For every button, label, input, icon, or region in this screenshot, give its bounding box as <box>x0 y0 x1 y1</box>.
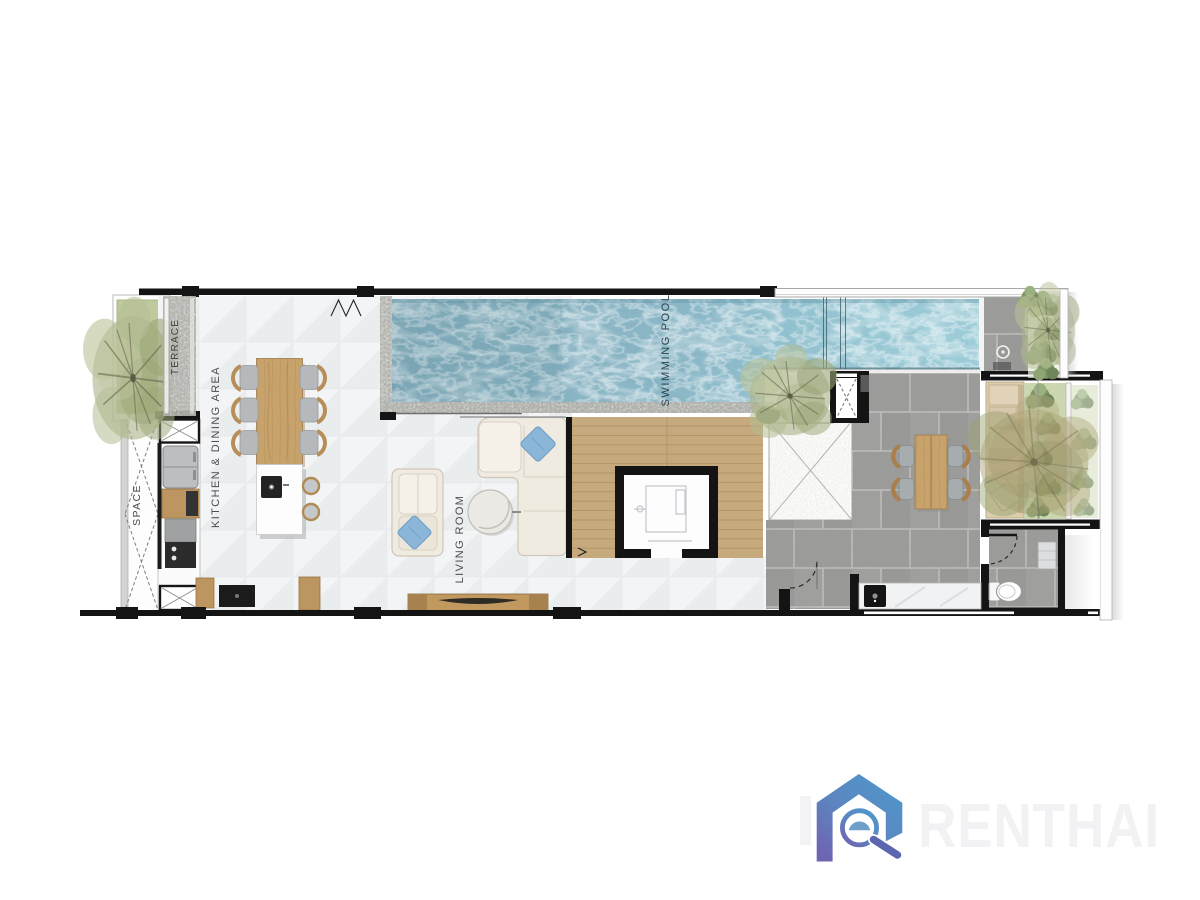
svg-text:TERRACE: TERRACE <box>170 319 181 375</box>
svg-text:SPACE: SPACE <box>131 484 143 526</box>
svg-text:RENTHAI: RENTHAI <box>918 792 1160 861</box>
svg-text:KITCHEN & DINING AREA: KITCHEN & DINING AREA <box>210 366 222 528</box>
svg-text:SWIMMING POOL: SWIMMING POOL <box>660 293 672 406</box>
svg-text:LIVING ROOM: LIVING ROOM <box>454 495 466 584</box>
